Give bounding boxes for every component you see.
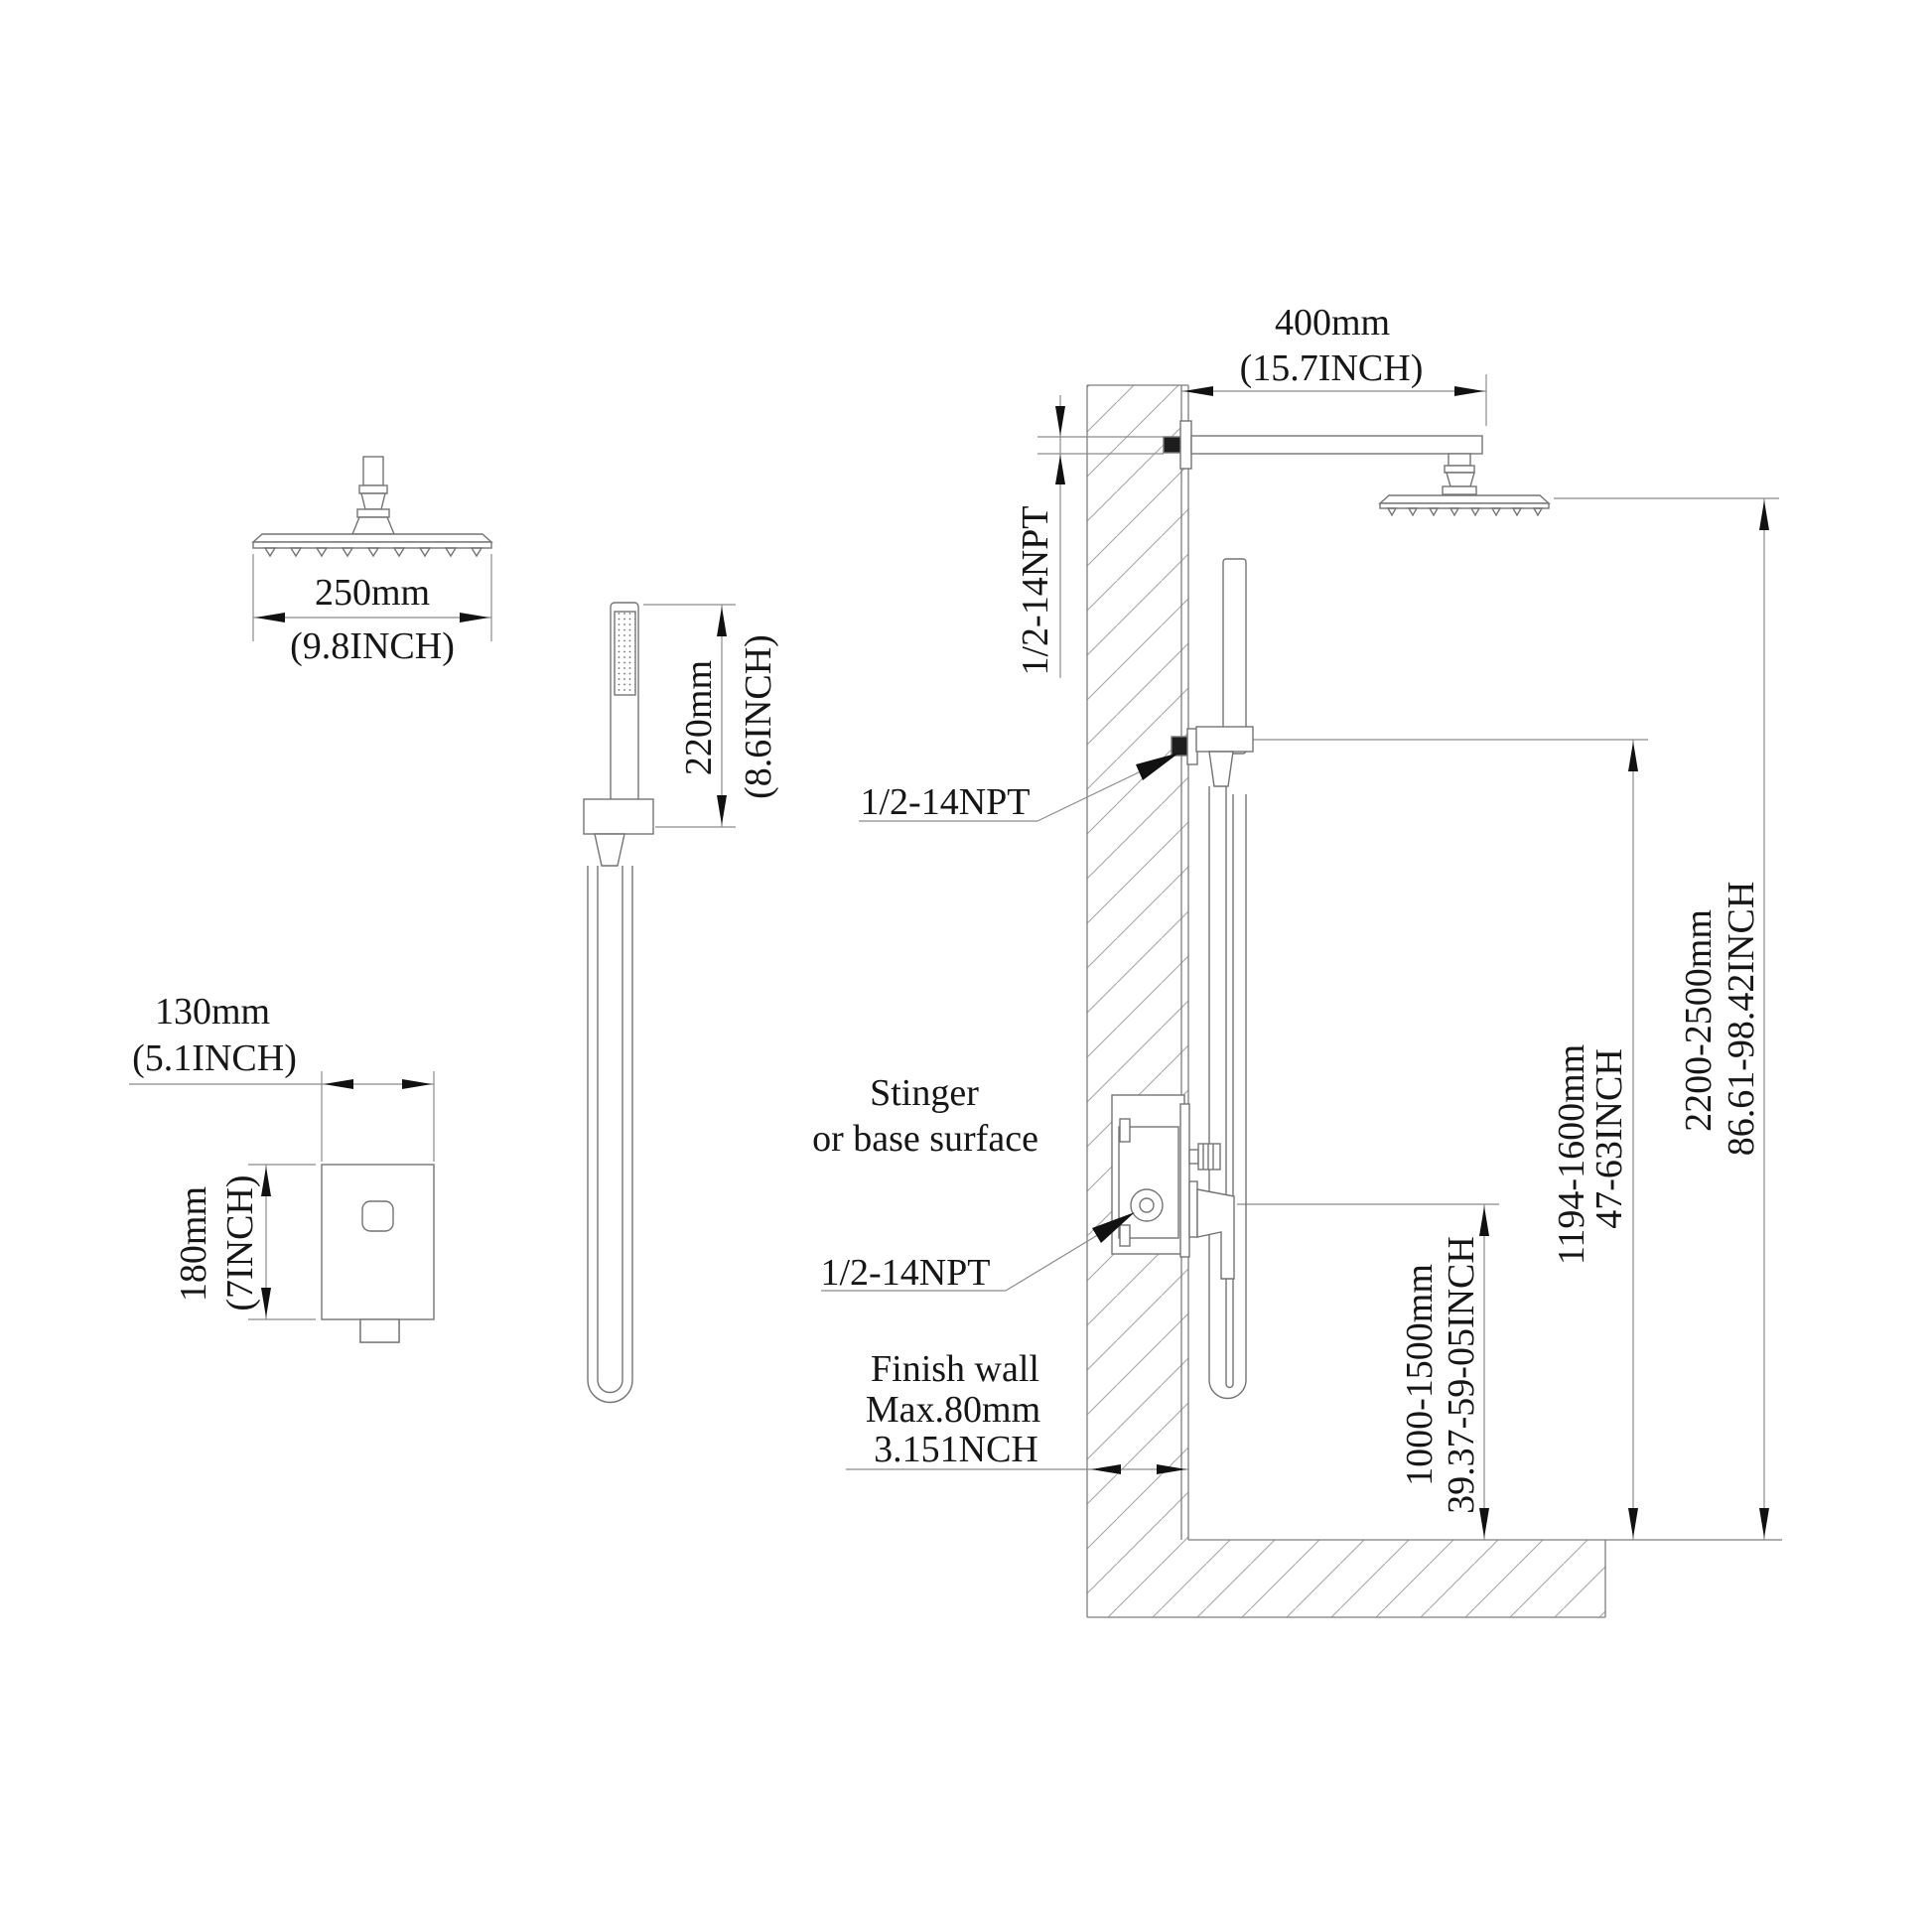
valve-opening xyxy=(362,1201,393,1231)
valve-front-view xyxy=(322,1165,434,1342)
floor-section xyxy=(1188,1540,1605,1617)
valve-width-inch: (5.1INCH) xyxy=(132,1039,297,1077)
stinger-note-line1: Stinger xyxy=(870,1074,979,1112)
shower-arm-side-view xyxy=(1164,421,1482,469)
arm-flange xyxy=(1180,421,1191,469)
finish-wall-line2: Max.80mm xyxy=(866,1391,1040,1429)
rain-head-width-mm: 250mm xyxy=(315,574,430,612)
hose-outer xyxy=(588,866,632,1403)
valve-side-view xyxy=(1112,1095,1234,1279)
hose-inner xyxy=(1226,786,1233,1388)
head-height-inch: 86.61-98.42INCH xyxy=(1723,882,1760,1157)
technical-drawing-canvas xyxy=(0,0,1932,1932)
valve-width-mm: 130mm xyxy=(155,993,270,1031)
hose-cone xyxy=(595,834,624,866)
hose-cone xyxy=(1209,752,1233,786)
hand-wand xyxy=(1223,559,1246,754)
valve-plate xyxy=(322,1165,434,1319)
valve-thread-label: 1/2-14NPT xyxy=(821,1254,991,1292)
shower-arm xyxy=(1191,436,1482,454)
hose-inner xyxy=(598,866,622,1393)
valve-height-inch: (7INCH) xyxy=(221,1174,259,1311)
valve-front-plate xyxy=(1180,1104,1189,1257)
stinger-note-line2: or base surface xyxy=(812,1120,1038,1158)
arm-length-mm: 400mm xyxy=(1275,304,1390,342)
head-height-mm: 2200-2500mm xyxy=(1680,909,1718,1132)
arm-thread-label: 1/2-14NPT xyxy=(1017,506,1054,676)
arm-thread-nipple xyxy=(1164,437,1181,453)
finish-wall-line1: Finish wall xyxy=(871,1350,1039,1388)
arm-length-inch: (15.7INCH) xyxy=(1240,349,1424,387)
finish-wall-line3: 3.151NCH xyxy=(874,1431,1038,1468)
rain-head-front-view xyxy=(253,457,491,556)
valve-height-mm: 180mm xyxy=(175,1186,212,1302)
outlet-thread-label: 1/2-14NPT xyxy=(861,783,1031,821)
hand-shower-length-mm: 220mm xyxy=(680,660,718,775)
valve-mount-height-inch: 39.37-59-05INCH xyxy=(1443,1236,1480,1514)
installation-diagram: 250mm (9.8INCH) 220mm (8.6INCH) 130mm (5… xyxy=(0,0,1932,1932)
holder-bracket xyxy=(584,799,653,834)
hand-shower-front-view xyxy=(584,603,653,1403)
hand-shower-length-inch: (8.6INCH) xyxy=(740,634,777,799)
valve-handle-lever xyxy=(1197,1189,1234,1279)
rain-head-side-view xyxy=(1380,454,1549,515)
hose-outer xyxy=(1209,786,1246,1399)
outlet-height-inch: 47-63INCH xyxy=(1590,1048,1628,1229)
spray-face xyxy=(615,612,635,695)
handle-escutcheon xyxy=(1189,1181,1197,1237)
valve-mount-height-mm: 1000-1500mm xyxy=(1401,1264,1439,1486)
valve-handle-lower xyxy=(360,1319,399,1342)
holder-bracket xyxy=(1196,727,1253,752)
valve-stem-knob xyxy=(1198,1144,1220,1170)
outlet-thread-nipple xyxy=(1172,737,1188,756)
rain-head-width-inch: (9.8INCH) xyxy=(290,627,455,665)
outlet-height-mm: 1194-1600mm xyxy=(1553,1044,1590,1265)
